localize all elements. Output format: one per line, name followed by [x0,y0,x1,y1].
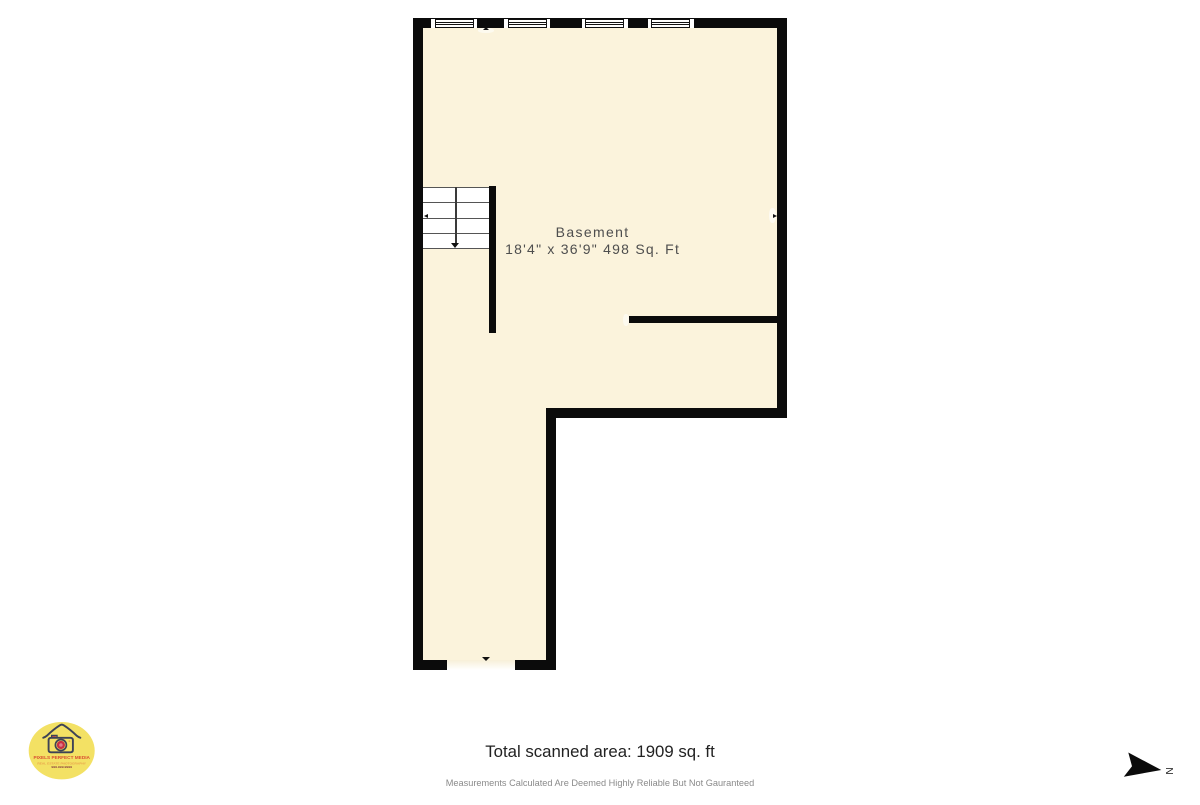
svg-text:REAL ESTATE PHOTOGRAPHY: REAL ESTATE PHOTOGRAPHY [37,761,87,765]
svg-text:N: N [1163,767,1174,774]
svg-text:PIXELS PERFECT MEDIA: PIXELS PERFECT MEDIA [33,755,90,761]
svg-text:999.999.9999: 999.999.9999 [51,766,73,769]
